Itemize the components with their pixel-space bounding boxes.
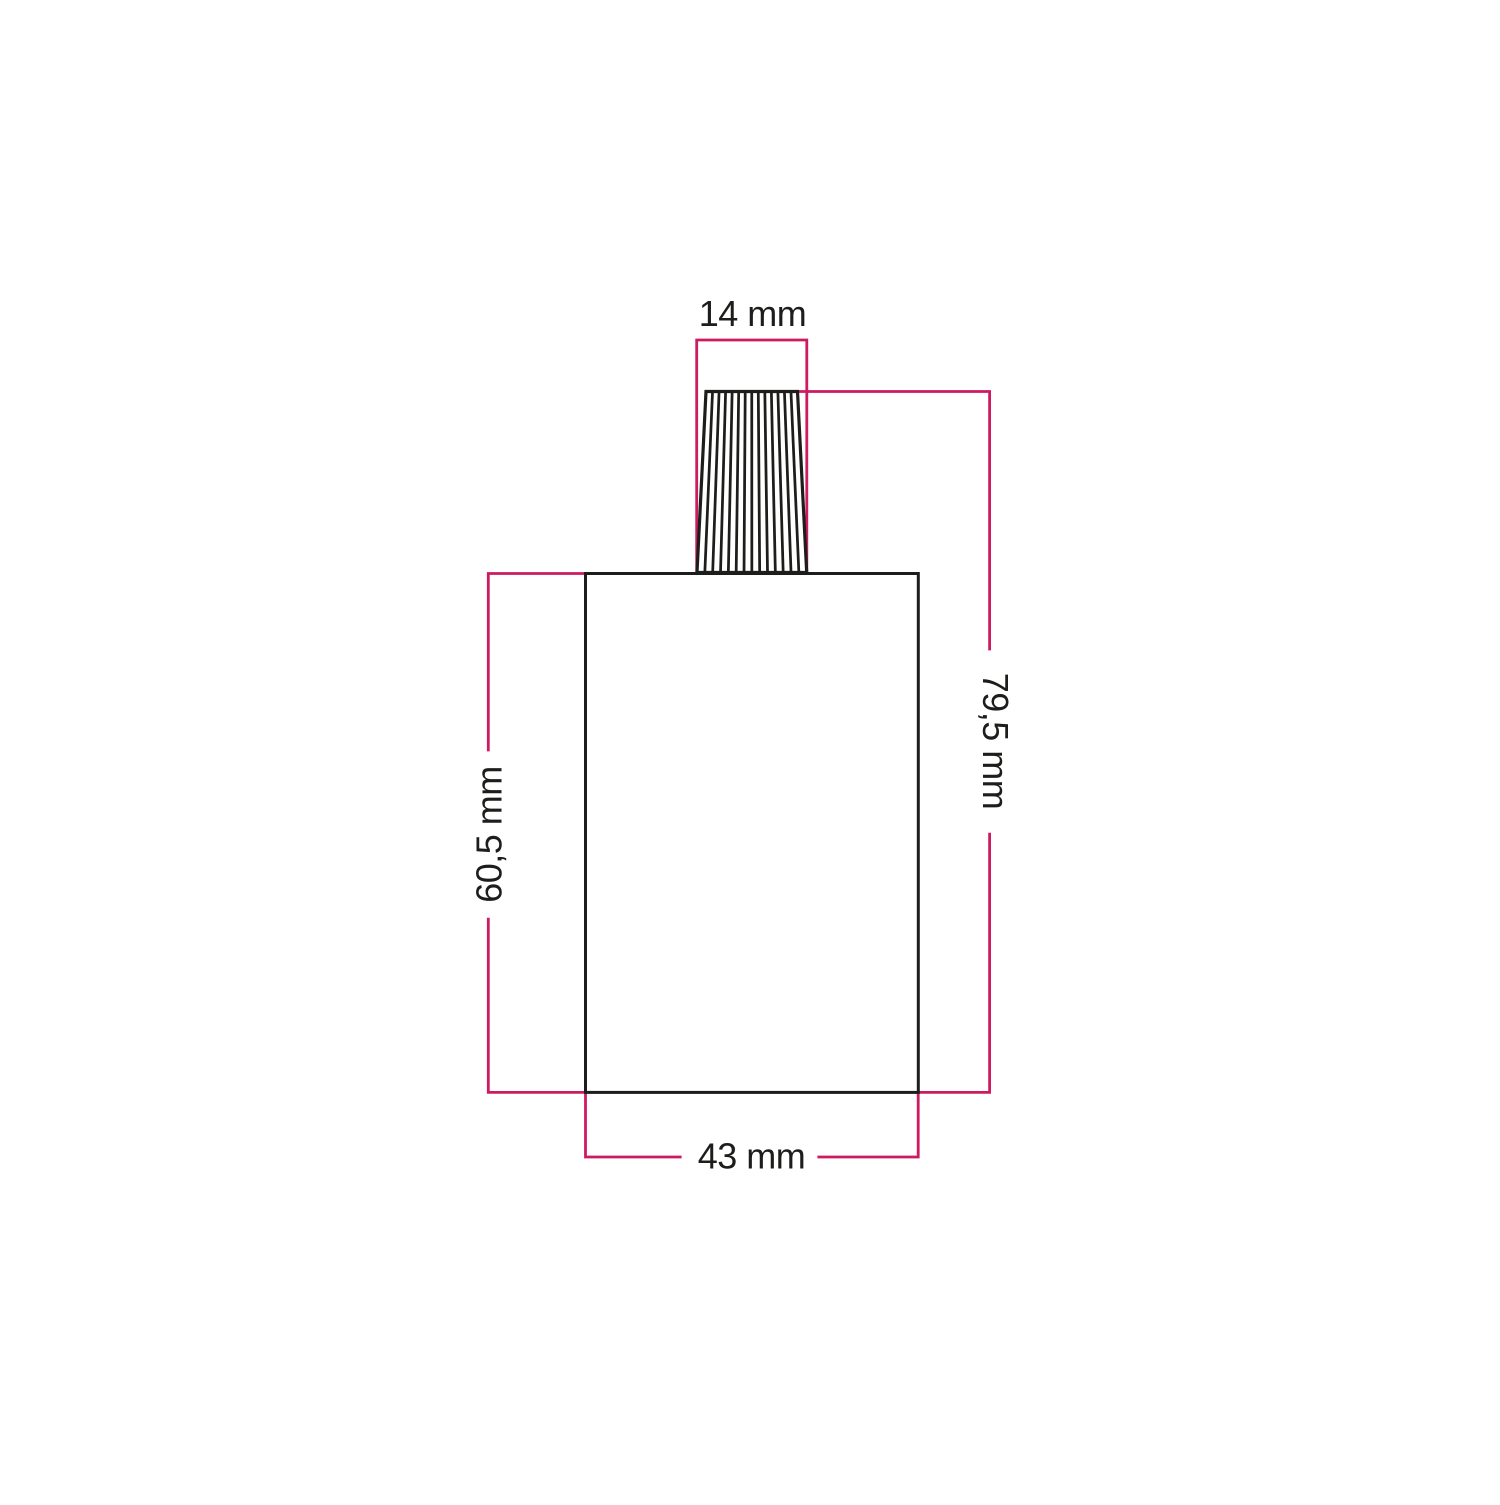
svg-text:60,5 mm: 60,5 mm xyxy=(469,766,510,903)
svg-text:43 mm: 43 mm xyxy=(698,1136,806,1177)
svg-text:79,5 mm: 79,5 mm xyxy=(975,673,1016,810)
svg-text:14 mm: 14 mm xyxy=(699,293,807,334)
